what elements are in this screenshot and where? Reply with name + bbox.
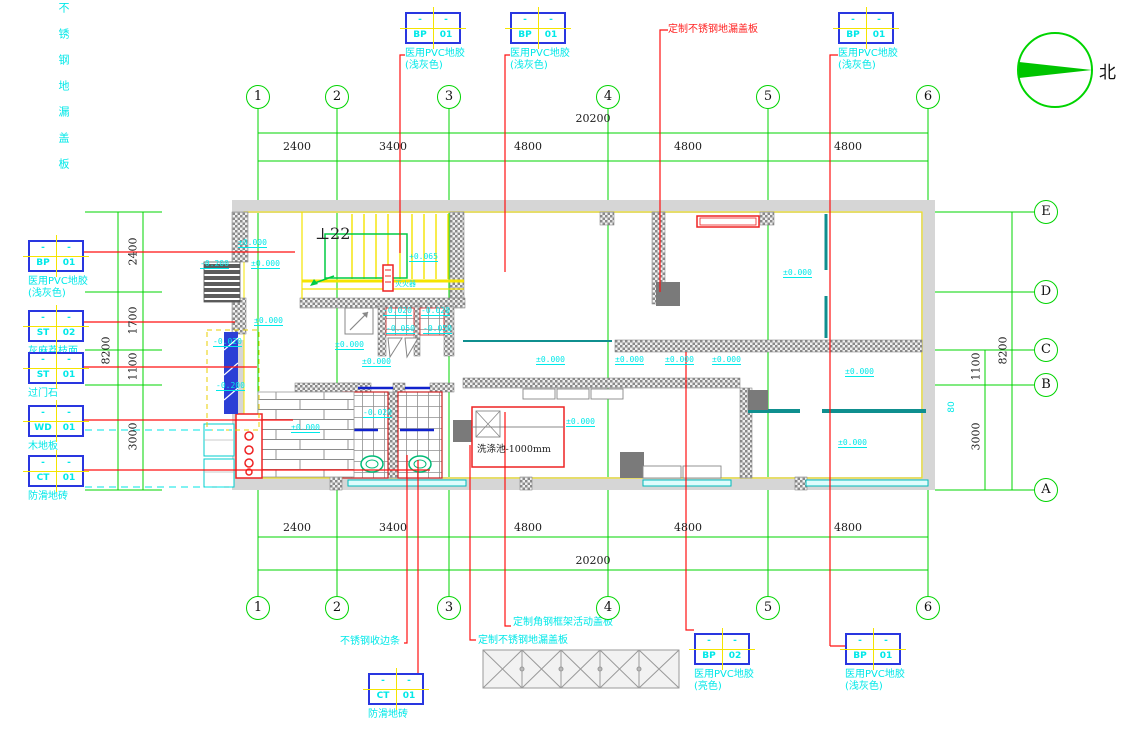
dim-bottom-seg-5: 4800 <box>818 521 878 534</box>
material-tag-top-2: -- BP01 医用PVC地胶(浅灰色) <box>510 12 570 72</box>
dim-top-seg-1: 2400 <box>267 140 327 153</box>
grid-bubble-col-5-bottom: 5 <box>756 596 780 620</box>
grid-bubble-col-1-bottom: 1 <box>246 596 270 620</box>
stair-count-label: ⊥22 <box>315 224 350 243</box>
equipment-box <box>620 452 644 478</box>
grid-bubble-row-D: D <box>1034 280 1058 304</box>
material-tag-left-st01: -- ST01 过门石 <box>28 352 84 400</box>
equipment-box <box>748 390 768 410</box>
material-tag-left-ct01: -- CT01 防滑地砖 <box>28 455 84 503</box>
dim-left-seg-2: 1700 <box>127 299 140 343</box>
dim-top-seg-5: 4800 <box>818 140 878 153</box>
grid-bubble-col-4: 4 <box>596 85 620 109</box>
elevation-marker: ±0.000 <box>845 367 874 377</box>
tag-box: -- BP01 <box>845 633 901 665</box>
door-leaf <box>388 338 402 357</box>
elevation-marker: ±0.000 <box>251 259 280 269</box>
dim-overall-height-right: 8200 <box>997 329 1010 373</box>
stove-fixture <box>236 414 262 478</box>
elevation-marker: ±0.000 <box>712 355 741 365</box>
dim-bottom-seg-1: 2400 <box>267 521 327 534</box>
grid-bubble-col-4-bottom: 4 <box>596 596 620 620</box>
elevation-marker: ±0.000 <box>566 417 595 427</box>
elevation-marker: -0.020 <box>363 408 392 418</box>
extinguisher-label: 灭火器 <box>395 279 416 289</box>
elevation-marker: -0.020 <box>383 306 412 316</box>
dim-overall-height-left: 8200 <box>100 329 113 373</box>
grid-bubble-row-E: E <box>1034 200 1058 224</box>
dim-left-seg-4: 3000 <box>127 415 140 459</box>
grid-bubble-row-C: C <box>1034 338 1058 362</box>
dim-right-seg-1: 1100 <box>970 345 983 389</box>
elevation-marker: ±0.000 <box>615 355 644 365</box>
elevation-marker: -0.050 <box>423 324 452 334</box>
corner-note: 不锈钢地漏盖板 <box>55 2 71 247</box>
grid-bubble-col-3: 3 <box>437 85 461 109</box>
elevation-marker: ±0.000 <box>783 268 812 278</box>
grid-bubble-col-5: 5 <box>756 85 780 109</box>
elevation-marker: ±0.000 <box>362 357 391 367</box>
elevation-marker: ±0.000 <box>291 423 320 433</box>
note-custom-drain-bottom: 定制不锈钢地漏盖板 <box>478 635 568 647</box>
note-edge-strip: 不锈钢收边条 <box>340 636 400 648</box>
elevation-marker: ±0.000 <box>536 355 565 365</box>
dim-right-seg-2: 3000 <box>970 415 983 459</box>
material-tag-bottom-ct01: -- CT01 防滑地砖 <box>368 673 424 721</box>
elevation-marker: -0.020 <box>421 306 450 316</box>
north-label: 北 <box>1099 58 1116 83</box>
dim-top-seg-3: 4800 <box>498 140 558 153</box>
grid-bubble-col-2-bottom: 2 <box>325 596 349 620</box>
dim-bottom-seg-4: 4800 <box>658 521 718 534</box>
tag-box: -- BP01 <box>510 12 566 44</box>
dim-bottom-seg-2: 3400 <box>363 521 423 534</box>
sink-label: 洗涤池-1000mm <box>477 441 551 455</box>
grid-bubble-col-1: 1 <box>246 85 270 109</box>
dim-right-small: 80 <box>947 397 957 417</box>
tag-box: -- ST02 <box>28 310 84 342</box>
material-tag-left-wd01: -- WD01 木地板 <box>28 405 84 453</box>
elevation-marker: ±0.000 <box>335 340 364 350</box>
tag-box: -- BP02 <box>694 633 750 665</box>
tag-box: -- CT01 <box>28 455 84 487</box>
note-custom-drain-top: 定制不锈钢地漏盖板 <box>668 20 758 35</box>
grid-bubble-col-6-bottom: 6 <box>916 596 940 620</box>
tag-box: -- CT01 <box>368 673 424 705</box>
dim-bottom-seg-3: 4800 <box>498 521 558 534</box>
material-tag-bottom-bp01: -- BP01 医用PVC地胶(浅灰色) <box>845 633 905 693</box>
tag-box: -- ST01 <box>28 352 84 384</box>
tag-box: -- BP01 <box>28 240 84 272</box>
dim-overall-width-top: 20200 <box>553 112 633 125</box>
dim-overall-width-bottom: 20200 <box>553 554 633 567</box>
note-frame-cover: 定制角钢框架活动盖板 <box>513 617 613 629</box>
grid-bubble-col-3-bottom: 3 <box>437 596 461 620</box>
material-tag-bottom-bp02: -- BP02 医用PVC地胶(亮色) <box>694 633 754 693</box>
elevation-marker: ±0.000 <box>665 355 694 365</box>
wood-floor-room <box>258 392 354 477</box>
dim-top-seg-2: 3400 <box>363 140 423 153</box>
elevation-marker: -0.200 <box>200 259 229 269</box>
material-tag-left-bp01: -- BP01 医用PVC地胶(浅灰色) <box>28 240 88 300</box>
tag-box: -- BP01 <box>838 12 894 44</box>
leader-lines <box>83 30 845 676</box>
dim-left-seg-1: 2400 <box>127 230 140 274</box>
grid-bubble-row-B: B <box>1034 373 1058 397</box>
tag-box: -- BP01 <box>405 12 461 44</box>
drain-cover-detail <box>483 650 679 688</box>
elevation-marker: +0.065 <box>409 252 438 262</box>
toilet-rooms <box>343 388 442 478</box>
elevation-marker: ±0.000 <box>238 238 267 248</box>
elevation-marker: -0.200 <box>216 381 245 391</box>
elevation-marker: -0.020 <box>213 337 242 347</box>
cad-floor-plan-viewport: 不锈钢地漏盖板 北 定制不锈钢地漏盖板 不锈钢收边条 定制不锈钢地漏盖板 定制角… <box>0 0 1148 745</box>
grid-bubble-row-A: A <box>1034 478 1058 502</box>
dim-left-seg-3: 1100 <box>127 345 140 389</box>
north-arrow <box>1018 33 1092 107</box>
elevation-marker: ±0.000 <box>254 316 283 326</box>
tag-box: -- WD01 <box>28 405 84 437</box>
material-tag-top-3: -- BP01 医用PVC地胶(浅灰色) <box>838 12 898 72</box>
elevation-marker: -0.050 <box>386 324 415 334</box>
dim-top-seg-4: 4800 <box>658 140 718 153</box>
fire-cabinet <box>383 265 393 291</box>
grid-bubble-col-2: 2 <box>325 85 349 109</box>
sink-counter <box>472 407 564 467</box>
material-tag-top-1: -- BP01 医用PVC地胶(浅灰色) <box>405 12 465 72</box>
cabinet-fixtures <box>204 424 234 487</box>
grid-bubble-col-6: 6 <box>916 85 940 109</box>
elevation-marker: ±0.000 <box>838 438 867 448</box>
